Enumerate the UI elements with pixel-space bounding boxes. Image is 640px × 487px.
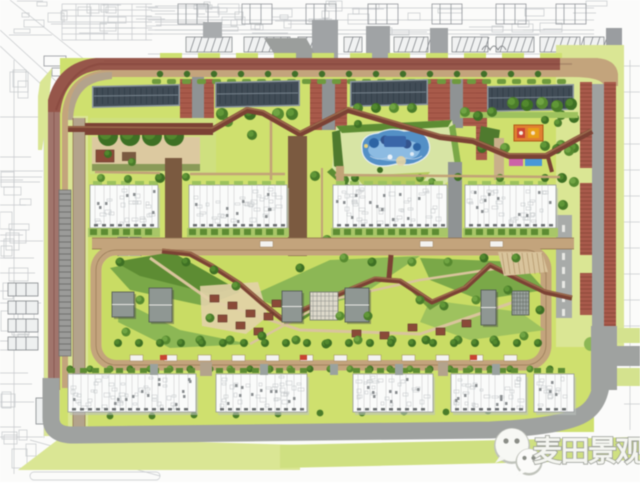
svg-text:麦田景观: 麦田景观 (533, 435, 640, 468)
